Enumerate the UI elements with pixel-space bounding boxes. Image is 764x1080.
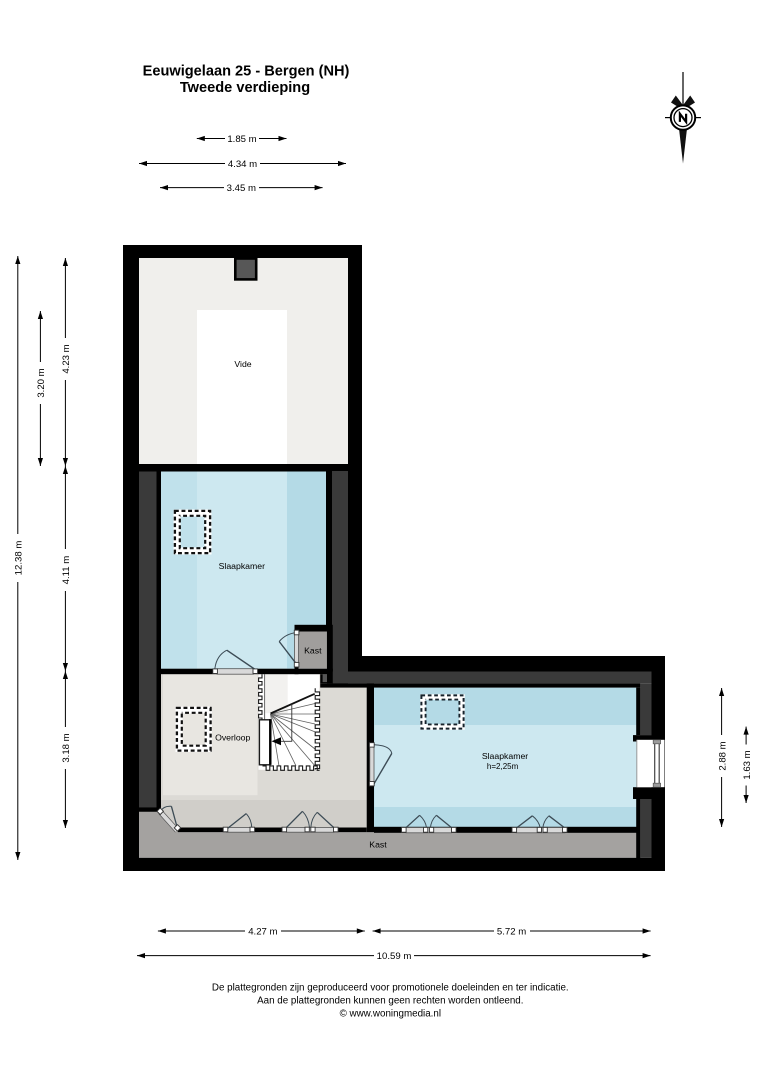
svg-text:4.27 m: 4.27 m bbox=[248, 927, 277, 938]
svg-text:5.72 m: 5.72 m bbox=[497, 927, 526, 938]
svg-text:4.34 m: 4.34 m bbox=[228, 159, 257, 170]
svg-text:Eeuwigelaan 25 - Bergen (NH): Eeuwigelaan 25 - Bergen (NH) bbox=[143, 64, 350, 80]
svg-text:4.23 m: 4.23 m bbox=[61, 344, 72, 373]
svg-text:Overloop: Overloop bbox=[215, 733, 250, 743]
svg-text:2.88 m: 2.88 m bbox=[717, 741, 728, 770]
svg-text:Kast: Kast bbox=[369, 840, 387, 850]
svg-text:h=2,25m: h=2,25m bbox=[487, 762, 519, 771]
svg-text:1.85 m: 1.85 m bbox=[227, 134, 256, 145]
svg-text:Tweede verdieping: Tweede verdieping bbox=[180, 80, 310, 96]
svg-text:3.18 m: 3.18 m bbox=[61, 733, 72, 762]
svg-text:Kast: Kast bbox=[304, 646, 322, 656]
svg-text:Slaapkamer: Slaapkamer bbox=[219, 561, 265, 571]
svg-text:© www.woningmedia.nl: © www.woningmedia.nl bbox=[340, 1009, 441, 1020]
svg-text:Slaapkamer: Slaapkamer bbox=[482, 751, 528, 761]
svg-text:4.11 m: 4.11 m bbox=[61, 556, 72, 585]
svg-text:Vide: Vide bbox=[234, 359, 251, 369]
svg-text:3.20 m: 3.20 m bbox=[36, 368, 47, 397]
svg-text:12.38 m: 12.38 m bbox=[14, 541, 25, 576]
svg-text:De plattegronden zijn geproduc: De plattegronden zijn geproduceerd voor … bbox=[212, 983, 569, 994]
svg-text:Aan de plattegronden kunnen ge: Aan de plattegronden kunnen geen rechten… bbox=[257, 996, 523, 1007]
svg-text:1.63 m: 1.63 m bbox=[742, 750, 753, 779]
svg-text:3.45 m: 3.45 m bbox=[227, 183, 256, 194]
svg-text:10.59 m: 10.59 m bbox=[377, 951, 412, 962]
